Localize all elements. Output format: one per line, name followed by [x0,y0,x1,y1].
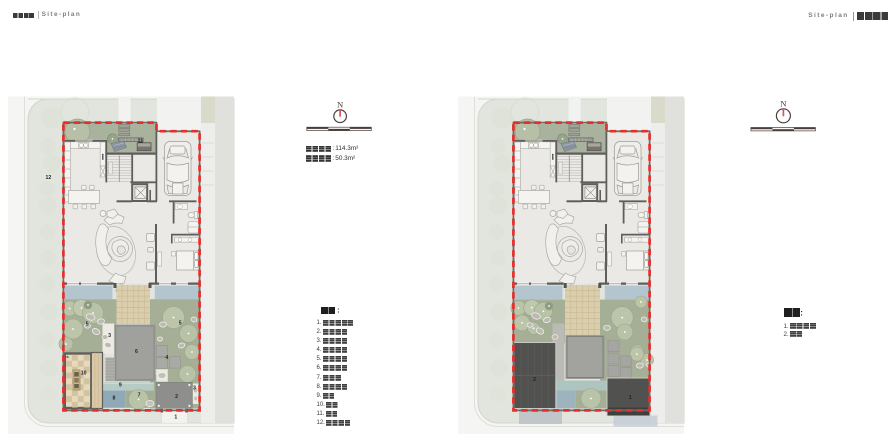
svg-text:5: 5 [179,321,182,327]
svg-text:1: 1 [629,395,632,401]
svg-text:5: 5 [86,322,89,328]
svg-text:12: 12 [46,175,52,181]
svg-text:7: 7 [138,392,141,398]
svg-text:3: 3 [193,386,196,392]
svg-text:6: 6 [135,349,138,355]
svg-text:10: 10 [81,371,87,377]
svg-text:4: 4 [165,355,168,361]
svg-text:2: 2 [533,377,536,383]
svg-text:1: 1 [174,414,177,420]
svg-text:3: 3 [108,333,111,339]
svg-text:N: N [337,100,344,110]
svg-text:8: 8 [113,396,116,402]
svg-text:9: 9 [119,383,122,389]
svg-text:11: 11 [138,138,144,144]
svg-text:2: 2 [175,394,178,400]
svg-text:N: N [780,99,787,109]
